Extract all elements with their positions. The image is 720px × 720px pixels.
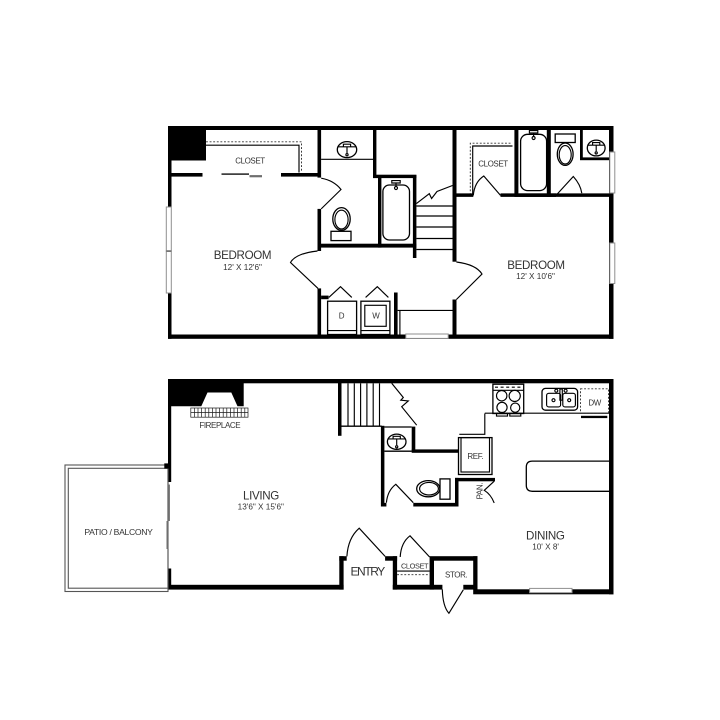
svg-text:13'6" X 15'6": 13'6" X 15'6": [238, 503, 284, 512]
svg-text:10' X 8': 10' X 8': [532, 543, 559, 552]
svg-text:FIREPLACE: FIREPLACE: [199, 421, 240, 430]
svg-text:12' X 10'6": 12' X 10'6": [516, 272, 555, 281]
svg-text:W: W: [372, 311, 380, 320]
svg-text:STOR.: STOR.: [445, 571, 467, 580]
svg-text:12' X 12'6": 12' X 12'6": [223, 263, 262, 272]
svg-text:CLOSET: CLOSET: [478, 159, 508, 168]
svg-text:PATIO / BALCONY: PATIO / BALCONY: [84, 527, 153, 537]
svg-text:PAN.: PAN.: [476, 483, 485, 500]
svg-text:BEDROOM: BEDROOM: [507, 259, 564, 272]
svg-text:BEDROOM: BEDROOM: [214, 249, 271, 262]
svg-text:ENTRY: ENTRY: [350, 565, 385, 579]
svg-text:DW: DW: [588, 398, 601, 407]
svg-text:D: D: [339, 311, 345, 320]
svg-text:LIVING: LIVING: [243, 489, 279, 502]
svg-text:REF.: REF.: [467, 452, 483, 461]
svg-text:CLOSET: CLOSET: [401, 562, 429, 571]
svg-text:CLOSET: CLOSET: [235, 156, 265, 165]
svg-text:DINING: DINING: [526, 529, 565, 542]
